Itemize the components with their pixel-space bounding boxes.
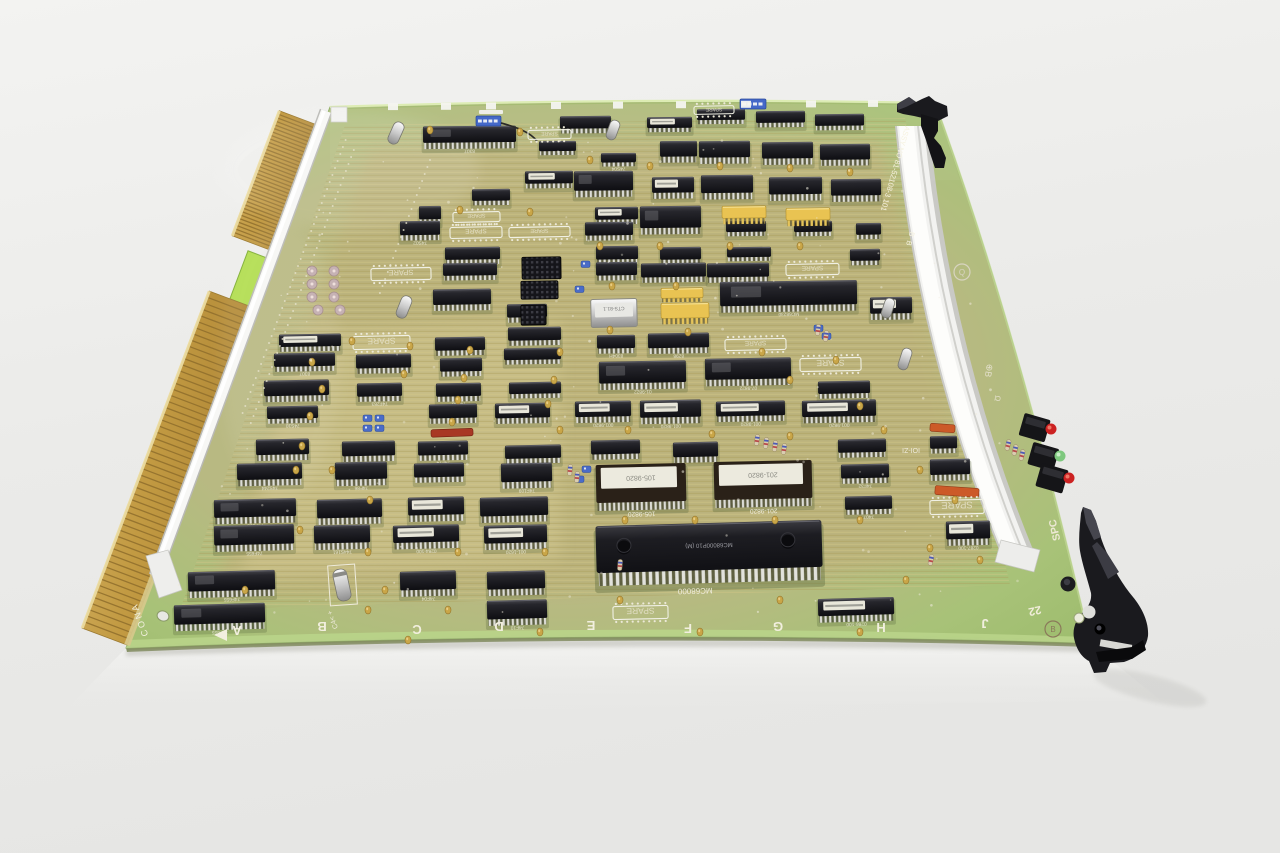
svg-text:8307: 8307 [464, 148, 475, 154]
svg-text:IOI-ZI: IOI-ZI [902, 446, 920, 453]
svg-text:74F655: 74F655 [223, 596, 240, 602]
svg-text:SPARE: SPARE [626, 606, 655, 617]
svg-text:74S02: 74S02 [413, 239, 427, 245]
svg-text:74S244: 74S244 [261, 485, 278, 491]
svg-text:SPARE: SPARE [530, 227, 549, 233]
svg-text:SPARE: SPARE [801, 264, 823, 271]
svg-text:0287-100: 0287-100 [958, 544, 979, 551]
svg-text:8307: 8307 [299, 370, 310, 376]
svg-text:74S10: 74S10 [285, 422, 299, 428]
svg-text:001-9820: 001-9820 [660, 422, 681, 428]
svg-text:001-9820: 001-9820 [829, 421, 850, 427]
svg-text:A: A [232, 623, 242, 638]
svg-text:7407: 7407 [863, 513, 874, 519]
svg-text:74S04: 74S04 [611, 165, 625, 171]
svg-text:74F32: 74F32 [858, 482, 872, 488]
svg-text:74F86: 74F86 [354, 485, 368, 491]
svg-text:SPARE: SPARE [467, 212, 486, 218]
svg-text:D: D [494, 619, 503, 634]
svg-text:8304H: 8304H [609, 352, 624, 358]
svg-text:201-9820: 201-9820 [748, 470, 778, 478]
svg-text:74F04: 74F04 [421, 595, 435, 601]
svg-text:01-9822: 01-9822 [634, 388, 652, 394]
svg-text:SPARE: SPARE [540, 130, 557, 136]
svg-text:0284-100: 0284-100 [416, 547, 437, 554]
svg-text:744S161: 744S161 [332, 548, 352, 554]
svg-text:105-9820: 105-9820 [627, 510, 655, 518]
svg-text:74F109: 74F109 [518, 487, 535, 493]
svg-text:74F655: 74F655 [246, 550, 263, 556]
svg-text:B: B [1050, 625, 1055, 634]
svg-text:SPARE: SPARE [705, 106, 722, 112]
svg-text:201-9820: 201-9820 [749, 507, 777, 515]
svg-text:74F10: 74F10 [510, 624, 524, 630]
svg-text:001-9820: 001-9820 [740, 420, 761, 426]
svg-text:001-1620: 001-1620 [505, 548, 526, 555]
svg-text:C: C [412, 622, 422, 637]
svg-text:G: G [773, 619, 783, 634]
svg-text:CTS-81.1: CTS-81.1 [603, 305, 625, 312]
svg-text:B: B [317, 619, 326, 634]
svg-text:Q: Q [959, 268, 965, 277]
svg-text:001-9820: 001-9820 [593, 421, 614, 427]
svg-text:SPARE: SPARE [367, 336, 396, 347]
svg-text:F: F [684, 621, 692, 636]
svg-text:H: H [876, 620, 885, 635]
svg-text:SPARE: SPARE [816, 358, 845, 369]
svg-text:MC68230: MC68230 [778, 311, 799, 317]
svg-text:J: J [981, 616, 988, 631]
svg-text:105-9820: 105-9820 [626, 473, 656, 481]
svg-text:07-9822: 07-9822 [739, 384, 757, 390]
svg-text:MC68000: MC68000 [677, 586, 712, 596]
svg-text:SPARE: SPARE [744, 339, 766, 346]
svg-text:8298: 8298 [673, 352, 684, 358]
svg-text:SPARE: SPARE [464, 227, 486, 234]
svg-text:E: E [586, 618, 595, 633]
svg-text:0286-100: 0286-100 [846, 620, 867, 627]
svg-text:SPARE: SPARE [388, 268, 413, 278]
svg-text:74F283: 74F283 [371, 400, 388, 406]
